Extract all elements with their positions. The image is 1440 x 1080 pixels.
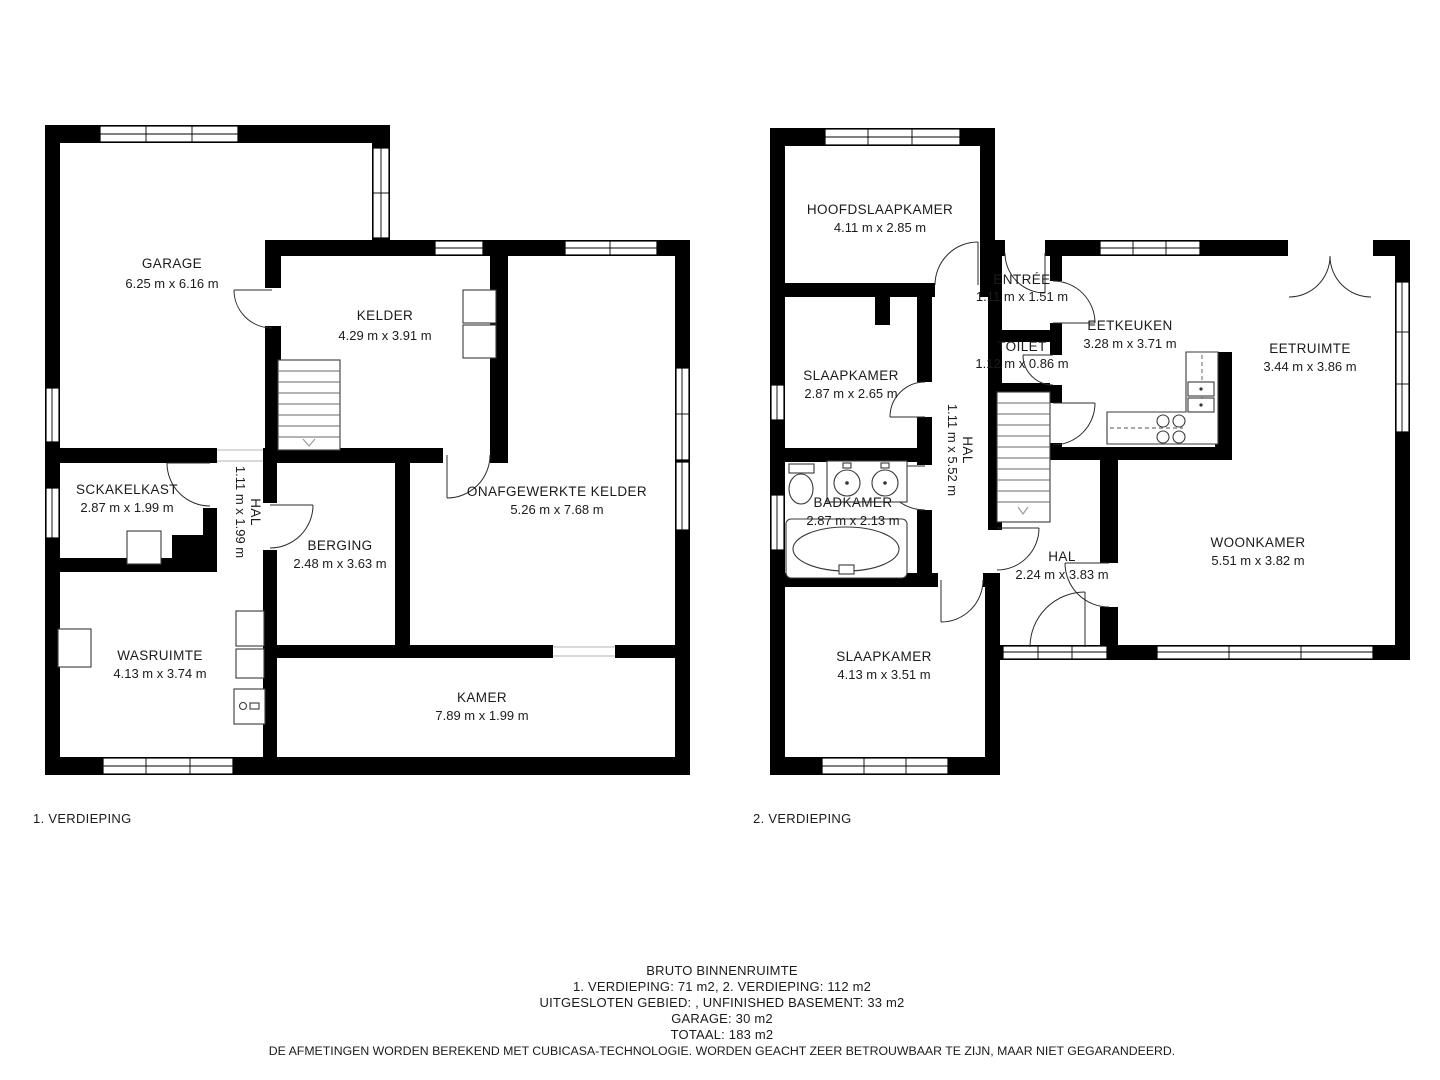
floor1-plan: GARAGE 6.25 m x 6.16 m KELDER 4.29 m x 3… (33, 125, 690, 826)
staircase-icon (997, 392, 1050, 522)
room-dims-entree: 1.11 m x 1.51 m (976, 289, 1068, 304)
room-dims-onafgewerkte-kelder: 5.26 m x 7.68 m (510, 502, 603, 517)
window-icon (100, 126, 238, 142)
staircase-icon (278, 360, 340, 450)
room-label-kelder: KELDER (357, 308, 413, 323)
window-icon (565, 241, 657, 255)
window-icon (373, 148, 389, 238)
room-label-hal2: HAL (1048, 549, 1076, 564)
window-icon (435, 241, 483, 255)
boiler-icon (234, 689, 265, 724)
window-icon (676, 368, 689, 460)
room-dims-hal1: 1.11 m x 1.99 m (233, 466, 248, 558)
room-dims-badkamer: 2.87 m x 2.13 m (806, 513, 899, 528)
room-label-eetkeuken: EETKEUKEN (1087, 318, 1172, 333)
door-icon (997, 528, 1039, 570)
room-label-sckakelkast: SCKAKELKAST (76, 482, 178, 497)
window-icon (771, 495, 784, 550)
room-label-badkamer: BADKAMER (814, 495, 893, 510)
window-icon (771, 385, 784, 420)
summary-line-excluded: UITGESLOTEN GEBIED: , UNFINISHED BASEMEN… (539, 995, 904, 1010)
room-label-wasruimte: WASRUIMTE (117, 648, 203, 663)
window-icon (822, 758, 948, 774)
door-icon (941, 580, 983, 622)
room-dims-toilet: 1.12 m x 0.86 m (975, 356, 1068, 371)
summary-line-garage: GARAGE: 30 m2 (671, 1011, 773, 1026)
room-dims-hal2: 2.24 m x 3.83 m (1015, 567, 1108, 582)
window-icon (1003, 646, 1107, 659)
room-label-hoofdslaapkamer: HOOFDSLAAPKAMER (807, 202, 953, 217)
room-dims-woonkamer: 5.51 m x 3.82 m (1211, 553, 1304, 568)
room-dims-sckakelkast: 2.87 m x 1.99 m (80, 500, 173, 515)
window-icon (1157, 646, 1373, 659)
room-label-berging: BERGING (307, 538, 372, 553)
floor2-label: 2. VERDIEPING (753, 811, 852, 826)
room-label-hal-lang: HAL (960, 436, 975, 464)
room-label-kamer: KAMER (457, 690, 507, 705)
room-label-woonkamer: WOONKAMER (1210, 535, 1305, 550)
room-label-onafgewerkte-kelder: ONAFGEWERKTE KELDER (467, 484, 647, 499)
room-label-entree: ENTRÉE (993, 272, 1050, 287)
room-dims-garage: 6.25 m x 6.16 m (125, 276, 218, 291)
room-label-toilet: TOILET (997, 339, 1046, 354)
room-dims-hal-lang: 1.11 m x 5.52 m (945, 404, 960, 496)
room-dims-slaapkamer2: 4.13 m x 3.51 m (837, 667, 930, 682)
kitchen-counter-icon (1107, 352, 1218, 444)
window-icon (46, 488, 59, 538)
window-icon (825, 129, 960, 145)
door-icon (234, 290, 272, 328)
floor1-label: 1. VERDIEPING (33, 811, 132, 826)
room-label-slaapkamer1: SLAAPKAMER (803, 368, 899, 383)
floor2-plan: HOOFDSLAAPKAMER 4.11 m x 2.85 m ENTRÉE 1… (753, 128, 1410, 826)
window-icon (1396, 282, 1409, 432)
room-dims-wasruimte: 4.13 m x 3.74 m (113, 666, 206, 681)
floor2-room-labels: HOOFDSLAAPKAMER 4.11 m x 2.85 m ENTRÉE 1… (803, 202, 1356, 682)
door-icon (1053, 403, 1095, 445)
cabinet-icon (236, 611, 264, 678)
window-icon (103, 758, 233, 774)
appliance-icon (127, 531, 161, 564)
room-dims-hoofdslaapkamer: 4.11 m x 2.85 m (834, 220, 926, 235)
room-label-garage: GARAGE (142, 256, 202, 271)
room-dims-eetkeuken: 3.28 m x 3.71 m (1083, 336, 1176, 351)
french-doors-icon (1289, 256, 1371, 297)
door-icon (1030, 592, 1085, 647)
room-dims-kelder: 4.29 m x 3.91 m (338, 328, 431, 343)
room-dims-berging: 2.48 m x 3.63 m (293, 556, 386, 571)
summary-title: BRUTO BINNENRUIMTE (646, 963, 798, 978)
front-door-opening (1005, 240, 1045, 256)
room-label-eetruimte: EETRUIMTE (1269, 341, 1351, 356)
summary-line-floors: 1. VERDIEPING: 71 m2, 2. VERDIEPING: 112… (573, 979, 871, 994)
door-icon (935, 242, 978, 285)
washer-icon (58, 629, 91, 667)
toilet-icon (789, 464, 814, 504)
room-label-hal1: HAL (248, 498, 263, 526)
room-label-slaapkamer2: SLAAPKAMER (836, 649, 932, 664)
summary-line-total: TOTAAL: 183 m2 (671, 1027, 774, 1042)
room-dims-slaapkamer1: 2.87 m x 2.65 m (804, 386, 897, 401)
room-dims-eetruimte: 3.44 m x 3.86 m (1263, 359, 1356, 374)
window-icon (46, 388, 59, 442)
summary-block: BRUTO BINNENRUIMTE 1. VERDIEPING: 71 m2,… (269, 963, 1175, 1058)
summary-disclaimer: DE AFMETINGEN WORDEN BEREKEND MET CUBICA… (269, 1044, 1175, 1058)
room-dims-kamer: 7.89 m x 1.99 m (435, 708, 528, 723)
window-icon (1100, 241, 1200, 255)
floorplan-canvas: GARAGE 6.25 m x 6.16 m KELDER 4.29 m x 3… (0, 0, 1440, 1080)
window-icon (676, 462, 689, 530)
patio-door-opening (1288, 240, 1373, 256)
